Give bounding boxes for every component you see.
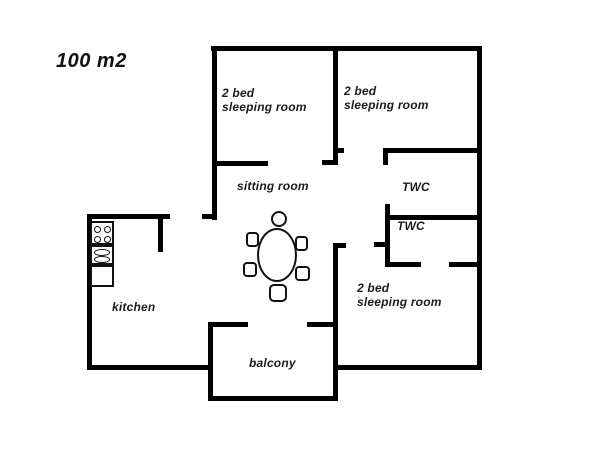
room-label-line: 2 bed [222, 86, 254, 100]
floor-plan: 100 m2 [0, 0, 600, 450]
wall-balcony-top-left [213, 322, 248, 327]
chair-icon [295, 236, 308, 251]
wall-twc2-bottom-left [385, 262, 421, 267]
chair-icon [243, 262, 257, 277]
sink-basin-icon [94, 249, 110, 256]
room-label-bedroom-bottom-right: 2 bed sleeping room [357, 281, 442, 309]
wall-balcony-top-right [307, 322, 338, 327]
chair-icon [246, 232, 259, 247]
room-label-line: sleeping room [344, 98, 429, 112]
stove-burner-icon [94, 226, 101, 233]
room-label-line: sleeping room [222, 100, 307, 114]
wall-twc1-left-stub [383, 148, 388, 165]
wall-bedroom-divider [333, 46, 338, 164]
wall-twc2-left [385, 204, 390, 267]
room-label-twc-lower: TWC [397, 219, 425, 233]
room-label-balcony: balcony [249, 356, 296, 370]
room-label-twc-upper: TWC [402, 180, 430, 194]
room-label-bedroom-top-left: 2 bed sleeping room [222, 86, 307, 114]
room-label-sitting-room: sitting room [237, 179, 309, 193]
chair-icon [295, 266, 310, 281]
wall-left-upper-foot [202, 214, 217, 219]
wall-twc2-bottom-right [449, 262, 482, 267]
wall-twc2-left-tick [374, 242, 385, 247]
chair-icon [271, 211, 287, 227]
wall-bedroom-divider-foot [322, 160, 338, 165]
room-label-bedroom-top-right: 2 bed sleeping room [344, 84, 429, 112]
wall-bedroom2-door-tick [337, 148, 344, 153]
wall-bedroom1-bottom [212, 161, 268, 166]
wall-balcony-left [208, 322, 213, 401]
area-title: 100 m2 [56, 50, 127, 73]
wall-kitchen-entry-stub [158, 219, 163, 252]
room-label-kitchen: kitchen [112, 300, 155, 314]
wall-center-door-tick [338, 243, 346, 248]
wall-left-upper [212, 46, 217, 220]
wall-top-outer [211, 46, 482, 51]
chair-icon [269, 284, 287, 302]
kitchen-counter-icon [90, 265, 114, 287]
room-label-line: sleeping room [357, 295, 442, 309]
room-label-line: 2 bed [344, 84, 376, 98]
stove-burner-icon [94, 236, 101, 243]
wall-right-outer [477, 46, 482, 370]
sink-basin-icon [94, 256, 110, 263]
wall-kitchen-bottom [87, 365, 213, 370]
room-label-line: 2 bed [357, 281, 389, 295]
stove-burner-icon [104, 236, 111, 243]
sink-icon [90, 245, 114, 265]
wall-bedroom2-bottom [383, 148, 482, 153]
dining-table-icon [257, 228, 297, 282]
wall-balcony-bottom [208, 396, 338, 401]
stove-icon [90, 221, 114, 245]
wall-bedroom3-bottom [333, 365, 482, 370]
stove-burner-icon [104, 226, 111, 233]
